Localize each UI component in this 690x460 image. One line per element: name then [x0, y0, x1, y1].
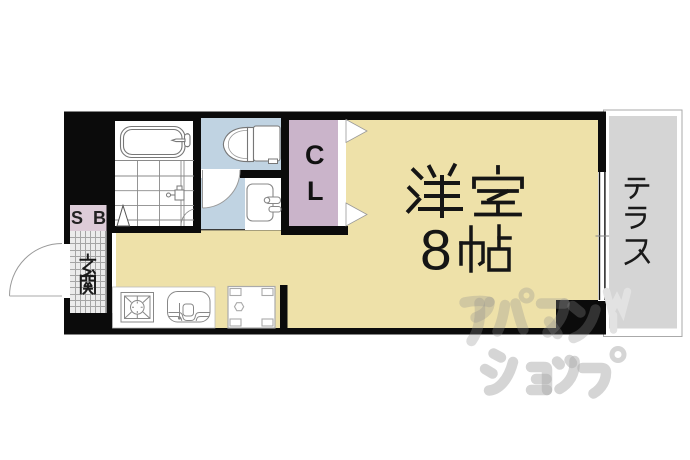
svg-text:L: L	[307, 176, 324, 206]
svg-text:C: C	[305, 140, 325, 170]
svg-text:8: 8	[420, 219, 452, 283]
